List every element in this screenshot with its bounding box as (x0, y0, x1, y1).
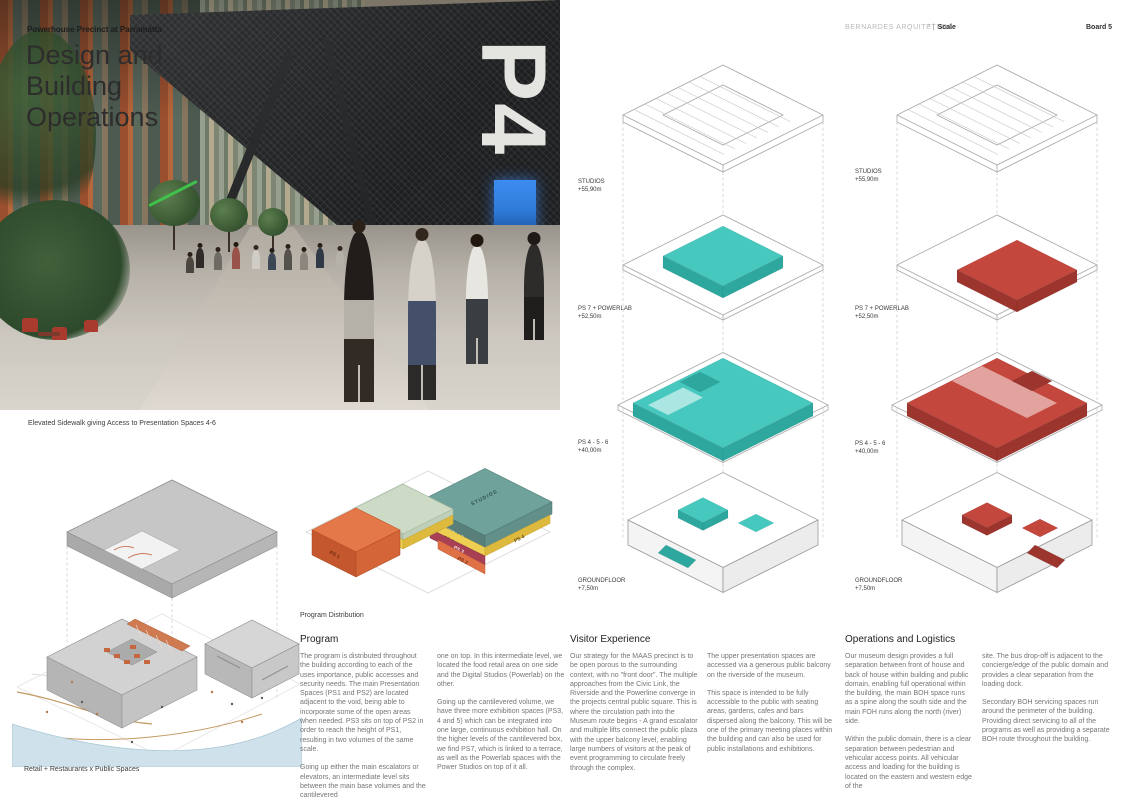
exploded-axon-visitor (588, 48, 848, 613)
level-label-ps7: PS 7 + POWERLAB +52,50m (855, 305, 909, 321)
photo-tree (210, 198, 248, 232)
photo-tree-trunk (228, 230, 230, 252)
project-label: Powerhouse Precinct at Parramatta (27, 25, 162, 34)
photo-tree (258, 208, 288, 236)
level-label-ps7: PS 7 + POWERLAB +52,50m (578, 305, 632, 321)
ps456-level (618, 353, 828, 463)
level-label-ground: GROUNDFLOOR +7,50m (855, 577, 902, 593)
level-label-ground: GROUNDFLOOR +7,50m (578, 577, 625, 593)
divider-mark: ° | (928, 24, 935, 31)
level-name: STUDIOS (578, 178, 605, 186)
visitor-paragraph: Our strategy for the MAAS precinct is to… (570, 652, 698, 773)
program-distribution-axon: STUDIOS POWERLAB PS 5 PS 4 PS 3 PS 2 PS … (298, 452, 563, 607)
level-name: GROUNDFLOOR (578, 577, 625, 585)
photo-person (284, 249, 292, 270)
scale-group: ° |Scale (928, 24, 956, 31)
page-title-line1: Design and (26, 40, 163, 71)
photo-person-foreground (466, 246, 488, 364)
hero-photo: P4 Powerhouse Precinct a (0, 0, 560, 410)
operations-paragraph: Within the public domain, there is a cle… (845, 735, 973, 791)
level-elevation: +40,00m (578, 447, 608, 455)
ground-level (628, 473, 818, 593)
visitor-col-1: Our strategy for the MAAS precinct is to… (570, 652, 698, 782)
photo-person (300, 252, 308, 270)
photo-person-foreground (344, 232, 374, 402)
program-paragraph: The program is distributed throughout th… (300, 652, 428, 754)
photo-person (252, 250, 260, 269)
visitor-paragraph: The upper presentation spaces are access… (707, 652, 835, 680)
program-paragraph: Going up the cantilevered volume, we hav… (437, 698, 565, 772)
level-elevation: +7,50m (855, 585, 902, 593)
exploded-axon-operations (862, 48, 1122, 613)
level-name: PS 7 + POWERLAB (855, 305, 909, 313)
photo-person (196, 248, 204, 268)
level-name: PS 4 - 5 - 6 (855, 440, 885, 448)
ps456-level (892, 353, 1102, 463)
photo-person (214, 252, 222, 270)
photo-person (186, 257, 194, 273)
section-heading-visitor: Visitor Experience (570, 634, 650, 645)
photo-person (316, 248, 324, 268)
operations-col-2: site. The bus drop-off is adjacent to th… (982, 652, 1110, 754)
scale-label: Scale (938, 24, 956, 31)
program-paragraph: Going up either the main escalators or e… (300, 763, 428, 800)
photo-cafe-table (38, 332, 60, 336)
visitor-paragraph: This space is intended to be fully acces… (707, 689, 835, 754)
level-label-studios: STUDIOS +55,90m (578, 178, 605, 194)
section-heading-operations: Operations and Logistics (845, 634, 955, 645)
level-elevation: +40,00m (855, 448, 885, 456)
board-number: Board 5 (1086, 24, 1112, 31)
level-name: PS 4 - 5 - 6 (578, 439, 608, 447)
roof-slab (897, 65, 1097, 172)
photo-person (268, 253, 276, 270)
level-name: GROUNDFLOOR (855, 577, 902, 585)
program-axon-caption: Program Distribution (300, 612, 364, 619)
site-exploded-axon (12, 452, 302, 767)
level-elevation: +55,90m (855, 176, 882, 184)
operations-paragraph: Our museum design provides a full separa… (845, 652, 973, 726)
museum-building-left (47, 619, 197, 728)
program-paragraph: one on top. In this intermediate level, … (437, 652, 565, 689)
level-name: STUDIOS (855, 168, 882, 176)
studios-level (897, 215, 1097, 320)
level-elevation: +52,50m (855, 313, 909, 321)
photo-caption: Elevated Sidewalk giving Access to Prese… (28, 420, 216, 427)
photo-person-foreground (524, 244, 544, 340)
level-label-ps456: PS 4 - 5 - 6 +40,00m (578, 439, 608, 455)
photo-person (336, 251, 344, 268)
page-title-line2: Building (26, 71, 163, 102)
photo-person (232, 247, 240, 269)
photo-cafe-chair (22, 318, 38, 332)
level-label-ps456: PS 4 - 5 - 6 +40,00m (855, 440, 885, 456)
photo-cafe-chair (84, 320, 98, 332)
page-title-line3: Operations (26, 102, 163, 133)
photo-person-foreground (408, 240, 436, 400)
site-axon-caption: Retail + Restaurants x Public Spaces (24, 766, 139, 773)
operations-col-1: Our museum design provides a full separa… (845, 652, 973, 800)
visitor-col-2: The upper presentation spaces are access… (707, 652, 835, 763)
operations-paragraph: Secondary BOH servicing spaces run aroun… (982, 698, 1110, 744)
ground-level (902, 473, 1092, 593)
powerhouse-building-right (205, 620, 299, 698)
program-col-2: one on top. In this intermediate level, … (437, 652, 565, 782)
program-col-1: The program is distributed throughout th… (300, 652, 428, 800)
level-name: PS 7 + POWERLAB (578, 305, 632, 313)
photo-wall-signage-p4: P4 (463, 13, 560, 183)
level-elevation: +7,50m (578, 585, 625, 593)
presentation-board: P4 Powerhouse Precinct a (0, 0, 1133, 800)
level-label-studios: STUDIOS +55,90m (855, 168, 882, 184)
section-heading-program: Program (300, 634, 338, 645)
level-elevation: +55,90m (578, 186, 605, 194)
roof-slab-gray (67, 480, 277, 598)
roof-slab (623, 65, 823, 172)
studios-level (623, 215, 823, 320)
level-elevation: +52,50m (578, 313, 632, 321)
photo-tree-trunk (173, 222, 175, 250)
page-title: Design and Building Operations (26, 40, 163, 133)
operations-paragraph: site. The bus drop-off is adjacent to th… (982, 652, 1110, 689)
